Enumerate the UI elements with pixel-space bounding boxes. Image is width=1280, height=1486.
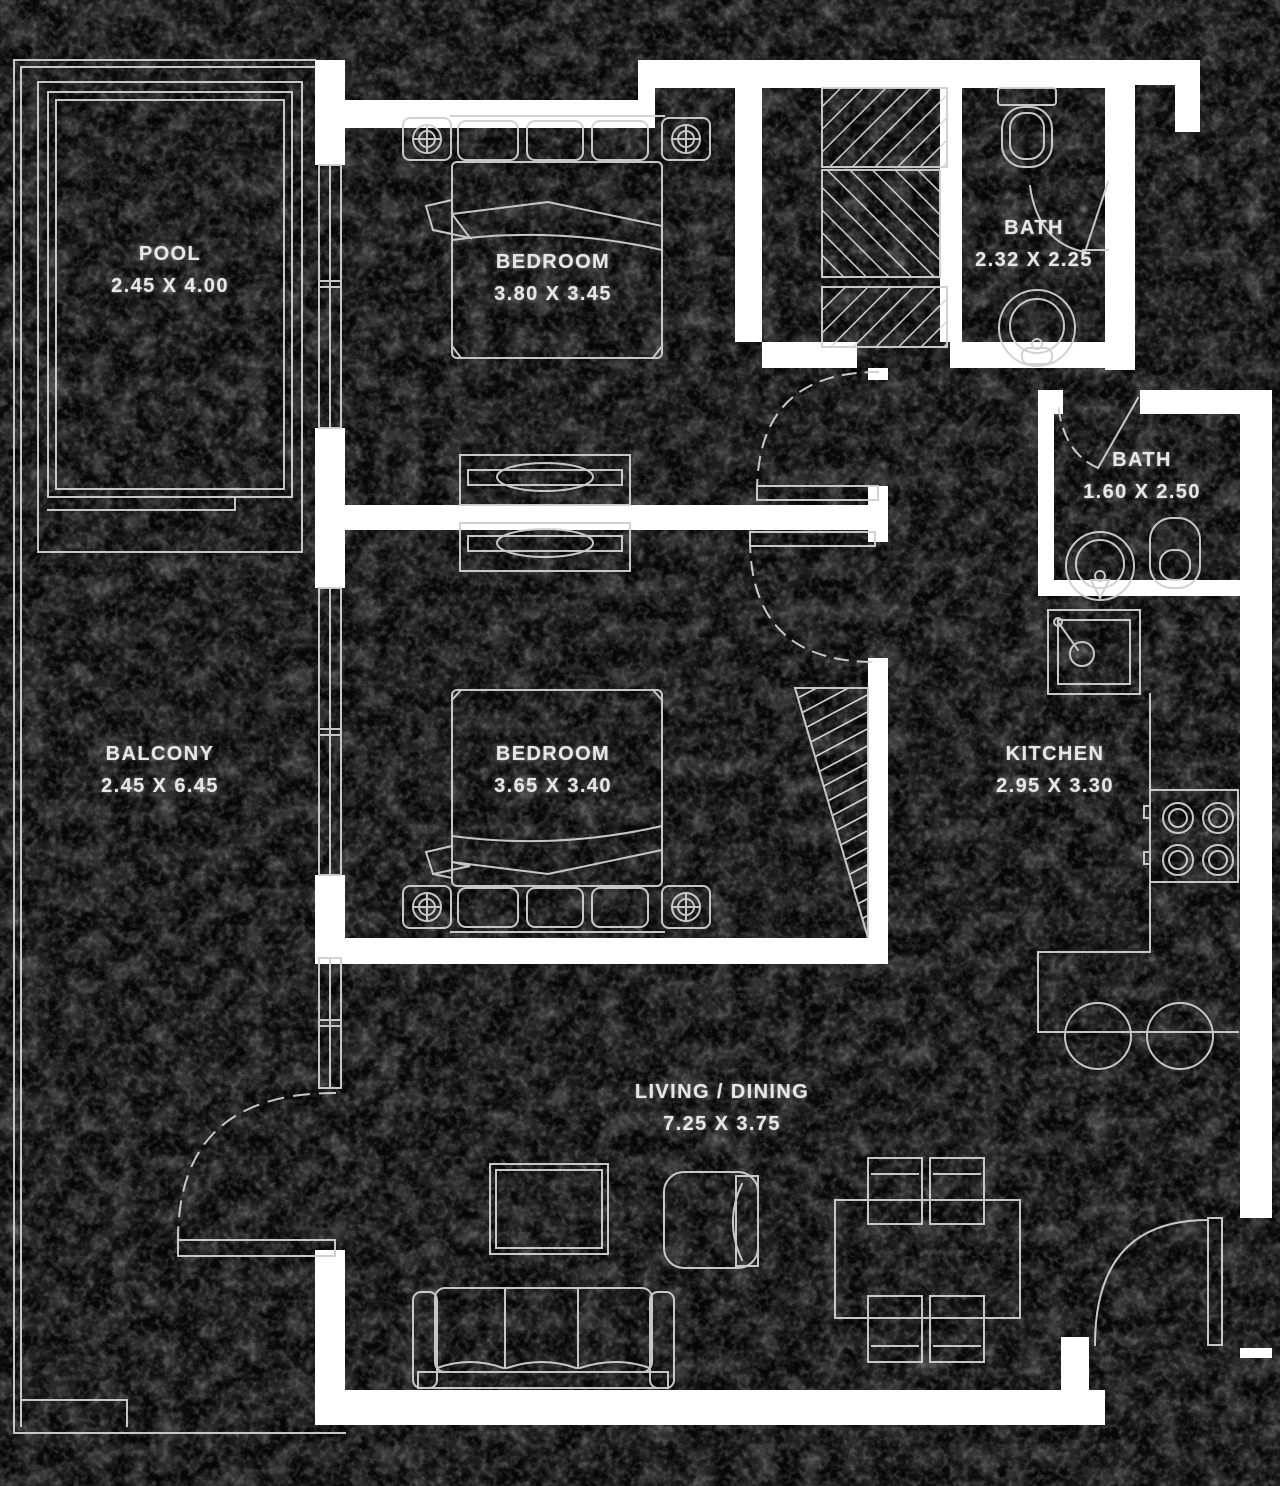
room-name: BATH bbox=[1083, 444, 1201, 476]
room-dims: 2.95 X 3.30 bbox=[996, 770, 1114, 802]
room-dims: 2.45 X 4.00 bbox=[111, 270, 229, 302]
room-name: BALCONY bbox=[101, 738, 219, 770]
wardrobe-hatched bbox=[822, 88, 947, 347]
room-name: KITCHEN bbox=[996, 738, 1114, 770]
room-dims: 2.32 X 2.25 bbox=[975, 244, 1093, 276]
room-name: BEDROOM bbox=[494, 738, 612, 770]
room-label-pool: POOL 2.45 X 4.00 bbox=[111, 238, 229, 303]
room-label-bedroom-1: BEDROOM 3.80 X 3.45 bbox=[494, 246, 612, 311]
room-name: BEDROOM bbox=[494, 246, 612, 278]
room-dims: 1.60 X 2.50 bbox=[1083, 476, 1201, 508]
room-label-kitchen: KITCHEN 2.95 X 3.30 bbox=[996, 738, 1114, 803]
room-name: LIVING / DINING bbox=[635, 1076, 809, 1108]
room-name: POOL bbox=[111, 238, 229, 270]
room-label-bedroom-2: BEDROOM 3.65 X 3.40 bbox=[494, 738, 612, 803]
room-label-living-dining: LIVING / DINING 7.25 X 3.75 bbox=[635, 1076, 809, 1141]
room-dims: 7.25 X 3.75 bbox=[635, 1108, 809, 1140]
floor-plan: POOL 2.45 X 4.00 BEDROOM 3.80 X 3.45 BAT… bbox=[0, 0, 1280, 1486]
room-label-bath-2: BATH 1.60 X 2.50 bbox=[1083, 444, 1201, 509]
room-dims: 2.45 X 6.45 bbox=[101, 770, 219, 802]
room-label-balcony: BALCONY 2.45 X 6.45 bbox=[101, 738, 219, 803]
room-dims: 3.65 X 3.40 bbox=[494, 770, 612, 802]
room-label-bath-1: BATH 2.32 X 2.25 bbox=[975, 212, 1093, 277]
room-name: BATH bbox=[975, 212, 1093, 244]
room-dims: 3.80 X 3.45 bbox=[494, 278, 612, 310]
